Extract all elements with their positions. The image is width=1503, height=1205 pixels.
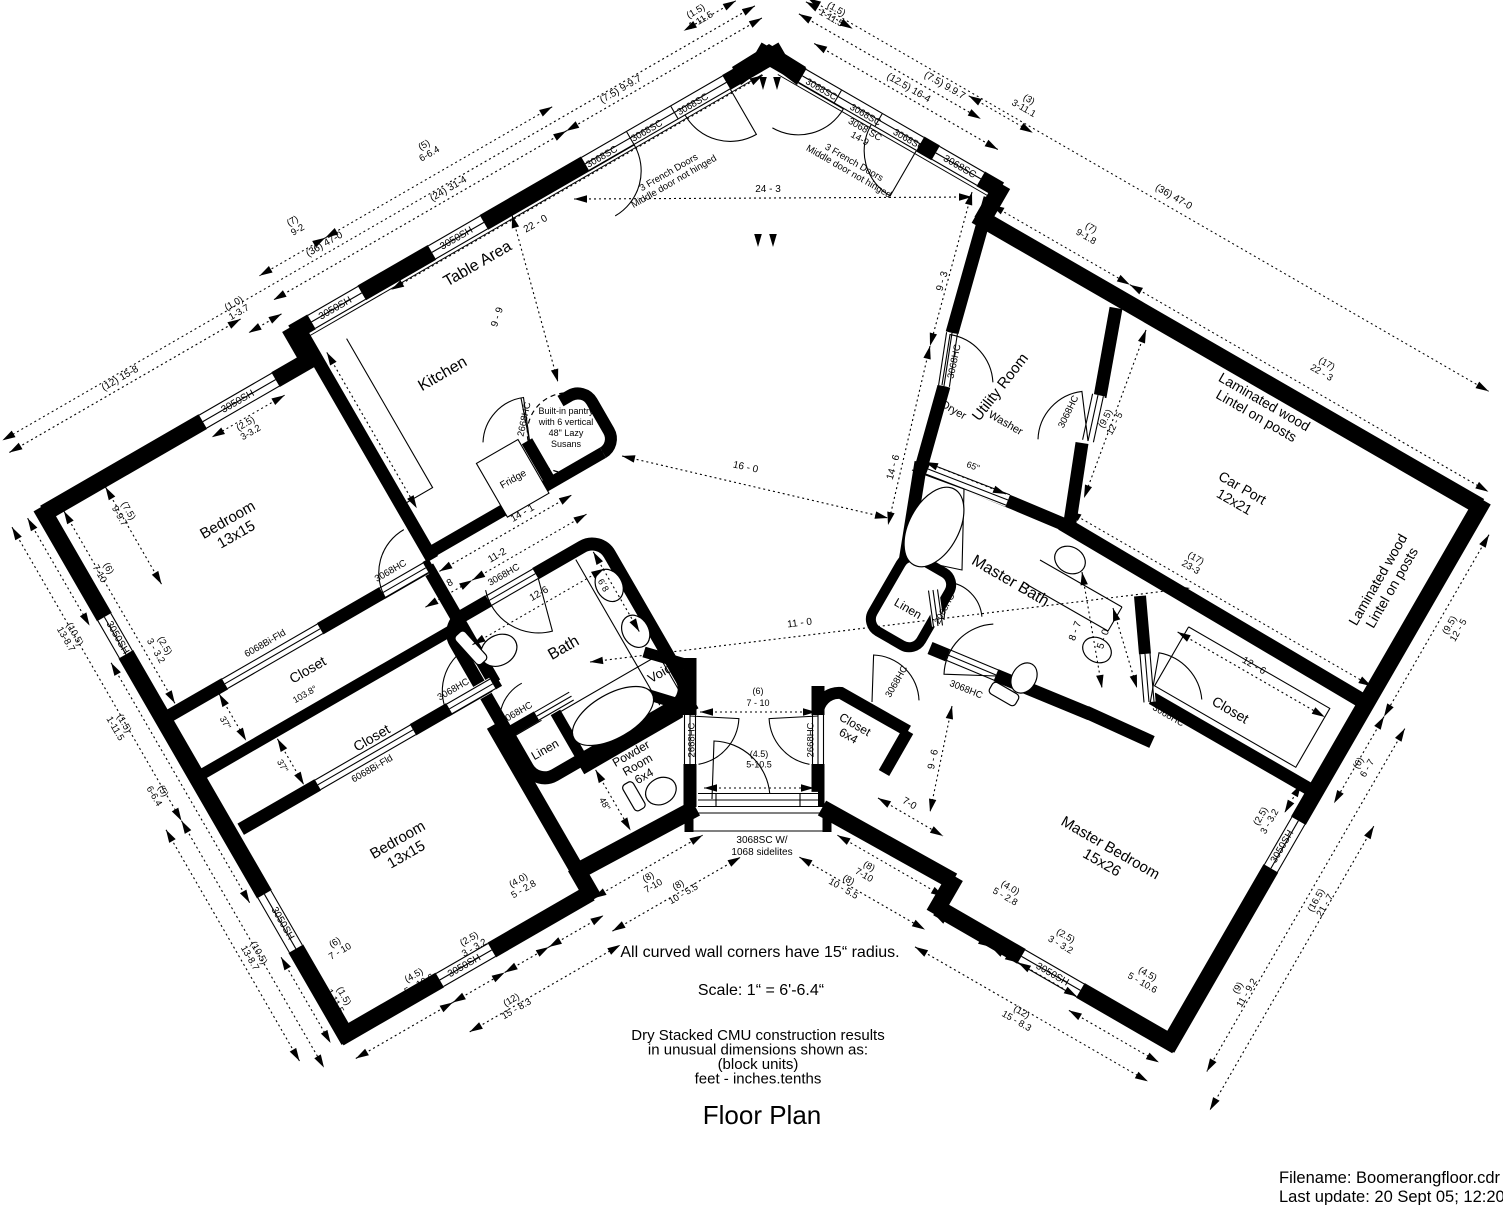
svg-text:24 - 3: 24 - 3 bbox=[755, 184, 781, 195]
svg-text:7 - 10: 7 - 10 bbox=[746, 698, 769, 708]
svg-text:(4.5): (4.5) bbox=[750, 749, 769, 759]
svg-text:(6): (6) bbox=[753, 686, 764, 696]
svg-text:Filename: Boomerangfloor.cdr: Filename: Boomerangfloor.cdr bbox=[1279, 1169, 1501, 1187]
svg-text:2668HC: 2668HC bbox=[806, 722, 817, 757]
svg-text:Last update: 20 Sept 05; 12:20: Last update: 20 Sept 05; 12:20 bbox=[1279, 1188, 1503, 1205]
svg-text:Susans: Susans bbox=[551, 439, 582, 449]
svg-text:Scale: 1“ = 6'-6.4“: Scale: 1“ = 6'-6.4“ bbox=[698, 982, 824, 999]
svg-text:5-10.5: 5-10.5 bbox=[746, 760, 772, 770]
svg-text:All curved wall corners have 1: All curved wall corners have 15“ radius. bbox=[620, 944, 899, 961]
svg-text:with 6 vertical: with 6 vertical bbox=[538, 417, 594, 427]
svg-text:Built-in pantry: Built-in pantry bbox=[538, 406, 594, 416]
svg-text:2668HC: 2668HC bbox=[687, 722, 698, 757]
svg-text:48" Lazy: 48" Lazy bbox=[549, 428, 584, 438]
svg-text:3068SC W/: 3068SC W/ bbox=[736, 835, 787, 846]
svg-text:feet - inches.tenths: feet - inches.tenths bbox=[695, 1071, 822, 1088]
svg-text:Floor Plan: Floor Plan bbox=[703, 1100, 822, 1130]
svg-text:1068 sidelites: 1068 sidelites bbox=[731, 847, 792, 858]
